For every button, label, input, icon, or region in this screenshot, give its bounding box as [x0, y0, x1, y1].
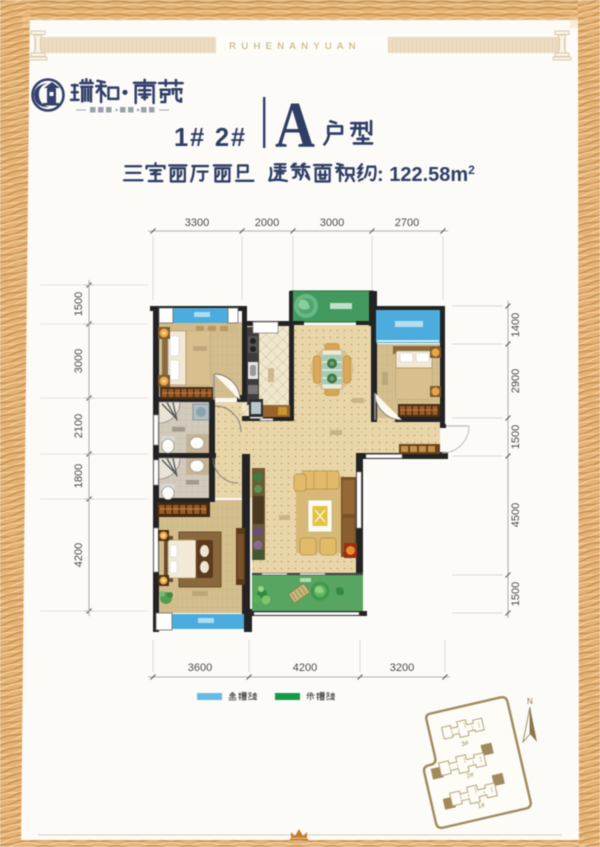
svg-text:3000: 3000 — [320, 217, 344, 229]
svg-text:2700: 2700 — [395, 217, 419, 229]
svg-text:2100: 2100 — [73, 414, 85, 438]
svg-text:1500: 1500 — [510, 582, 522, 606]
svg-text:3000: 3000 — [73, 349, 85, 373]
svg-text:RUHENANYUAN: RUHENANYUAN — [229, 41, 361, 52]
svg-text:2000: 2000 — [255, 217, 279, 229]
svg-text:2900: 2900 — [510, 369, 522, 393]
svg-text:N: N — [527, 697, 533, 706]
svg-text:4200: 4200 — [73, 543, 85, 567]
svg-text:1800: 1800 — [73, 464, 85, 488]
svg-text:: 122.58m2: : 122.58m2 — [377, 163, 475, 186]
svg-text:3200: 3200 — [390, 662, 414, 674]
svg-text:1500: 1500 — [73, 292, 85, 316]
svg-text:1500: 1500 — [510, 425, 522, 449]
svg-text:4200: 4200 — [293, 662, 317, 674]
svg-text:3300: 3300 — [185, 217, 209, 229]
svg-text:1400: 1400 — [510, 313, 522, 337]
svg-text:3600: 3600 — [188, 662, 212, 674]
svg-text:A: A — [275, 89, 315, 162]
svg-text:4500: 4500 — [510, 503, 522, 527]
svg-text:1# 2#: 1# 2# — [174, 124, 247, 152]
